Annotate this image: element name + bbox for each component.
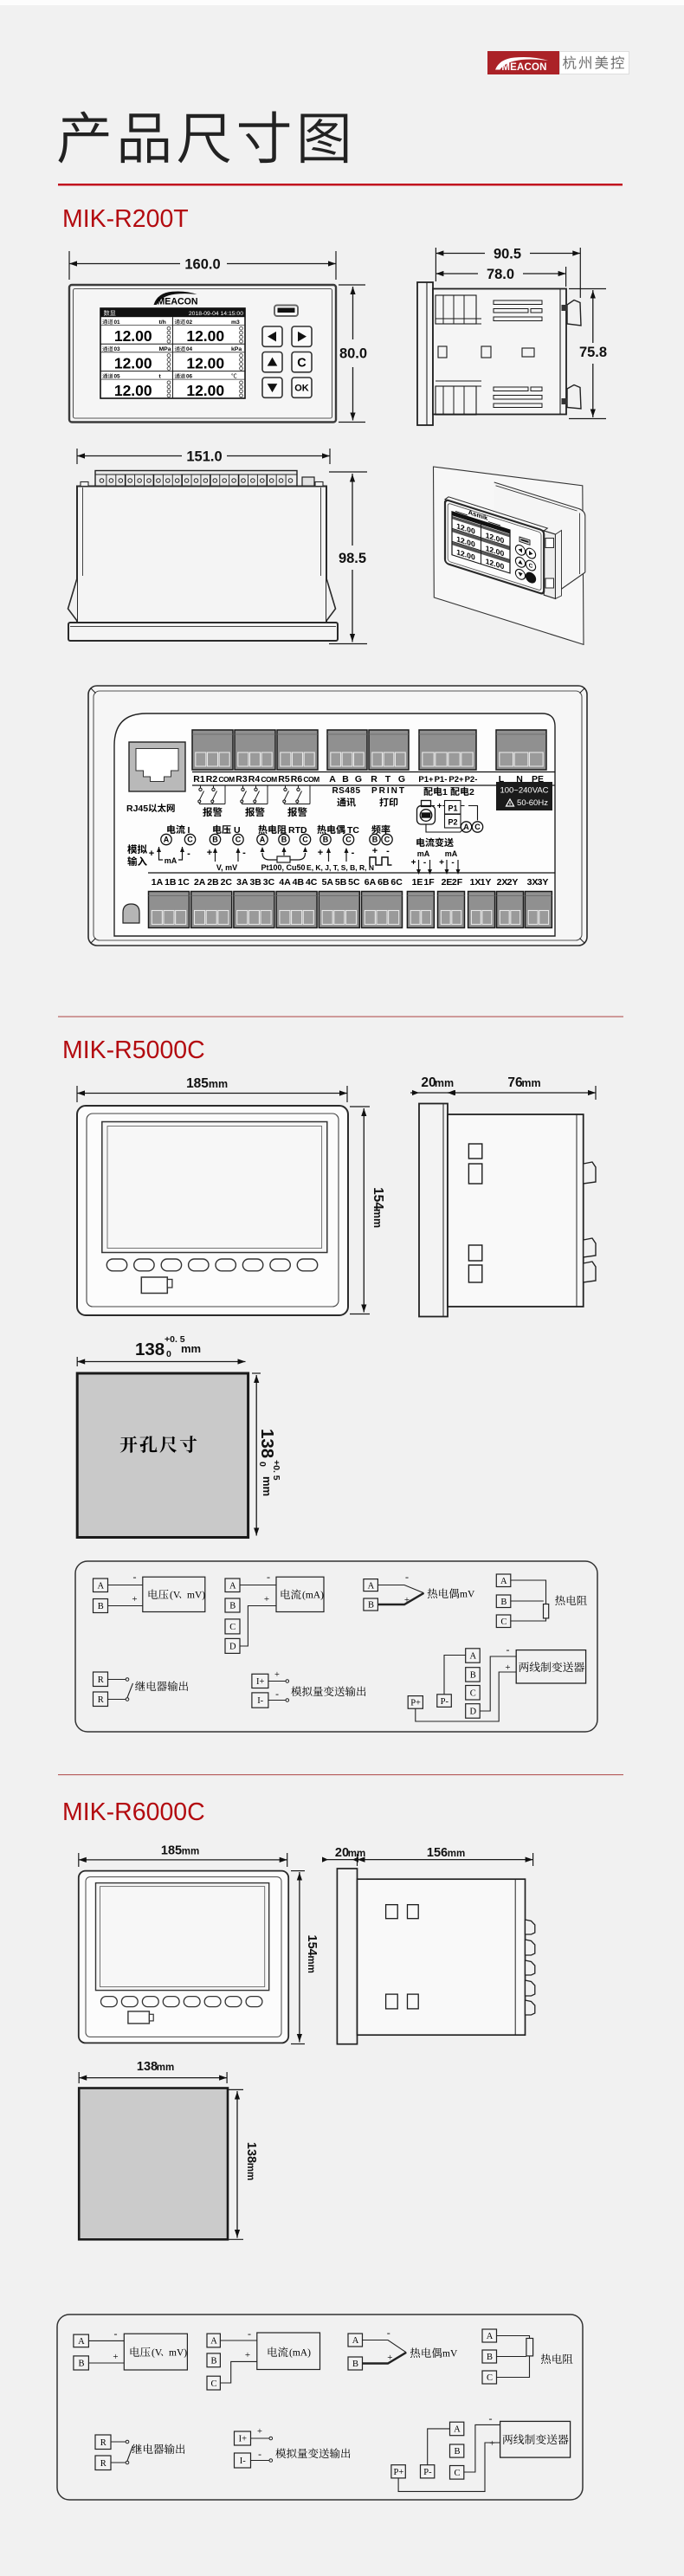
svg-text:P+: P+ xyxy=(394,2468,404,2477)
svg-text:mA: mA xyxy=(417,849,430,858)
svg-text:C: C xyxy=(236,836,242,844)
svg-text:mm: mm xyxy=(182,1847,199,1857)
svg-text:A: A xyxy=(469,1652,476,1662)
svg-text:138: 138 xyxy=(135,1340,165,1359)
svg-text:C: C xyxy=(229,1623,236,1632)
svg-text:4B: 4B xyxy=(293,877,305,888)
svg-text:mm: mm xyxy=(435,1077,454,1089)
svg-text:4C: 4C xyxy=(306,877,318,888)
svg-text:mm: mm xyxy=(306,1955,316,1972)
svg-text:2A: 2A xyxy=(194,877,206,888)
svg-text:+: + xyxy=(113,2352,118,2362)
svg-text:C: C xyxy=(454,2469,460,2478)
svg-text:A: A xyxy=(329,774,336,784)
svg-text:-: - xyxy=(258,2450,261,2460)
svg-text:C: C xyxy=(187,836,193,844)
svg-text:6A: 6A xyxy=(365,877,377,888)
svg-text:+: + xyxy=(132,1594,137,1604)
svg-text:B: B xyxy=(352,2360,358,2369)
svg-text:mV): mV) xyxy=(169,2348,187,2359)
svg-text:5C: 5C xyxy=(348,877,360,888)
svg-text:C: C xyxy=(470,1688,476,1698)
svg-text:R3: R3 xyxy=(236,774,248,784)
svg-text:-: - xyxy=(451,858,454,868)
svg-text:T: T xyxy=(385,774,391,784)
svg-text:0: 0 xyxy=(257,1462,268,1467)
svg-text:-: - xyxy=(114,2327,118,2340)
svg-text:12.00: 12.00 xyxy=(186,355,224,372)
svg-text:+: + xyxy=(439,858,444,868)
svg-text:E, K, J, T, S, B, R, N: E, K, J, T, S, B, R, N xyxy=(307,863,374,872)
svg-text:151.0: 151.0 xyxy=(186,449,222,465)
svg-text:-: - xyxy=(405,1571,409,1583)
svg-text:+: + xyxy=(149,849,154,859)
svg-text:mA: mA xyxy=(445,849,458,858)
svg-text:0: 0 xyxy=(166,1349,171,1359)
svg-text:D: D xyxy=(469,1708,476,1717)
svg-text:98.5: 98.5 xyxy=(339,551,366,566)
svg-text:OK: OK xyxy=(294,384,309,394)
svg-text:75.8: 75.8 xyxy=(579,345,607,360)
svg-text:P1: P1 xyxy=(448,804,457,813)
svg-text:2Y: 2Y xyxy=(507,877,519,888)
svg-text:2X: 2X xyxy=(497,877,508,888)
svg-text:156: 156 xyxy=(427,1846,448,1860)
svg-text:R: R xyxy=(100,2438,106,2448)
svg-text:P2-: P2- xyxy=(465,775,478,784)
svg-text:B: B xyxy=(487,2353,493,2362)
svg-text:COM: COM xyxy=(218,775,235,784)
svg-text:MEACON: MEACON xyxy=(157,297,197,307)
svg-text:+: + xyxy=(274,1670,280,1680)
svg-text:+: + xyxy=(257,2427,262,2437)
svg-text:P-: P- xyxy=(423,2468,432,2477)
svg-text:A: A xyxy=(98,1581,105,1591)
svg-text:(mA): (mA) xyxy=(289,2348,311,2359)
svg-text:R5: R5 xyxy=(278,774,290,784)
svg-text:D: D xyxy=(229,1643,236,1652)
svg-text:P1+: P1+ xyxy=(418,775,434,784)
svg-text:12.00: 12.00 xyxy=(114,327,152,345)
svg-text:A: A xyxy=(454,2425,461,2435)
svg-text:R: R xyxy=(371,774,377,784)
svg-text:05: 05 xyxy=(114,373,121,379)
svg-text:1Y: 1Y xyxy=(481,877,492,888)
svg-text:mm: mm xyxy=(157,2063,174,2073)
svg-text:+: + xyxy=(404,1595,410,1605)
svg-text:-: - xyxy=(275,1689,279,1700)
svg-text:3C: 3C xyxy=(263,877,275,888)
svg-text:B: B xyxy=(342,774,349,784)
svg-text:12.00: 12.00 xyxy=(114,382,152,399)
svg-text:R2: R2 xyxy=(206,774,218,784)
svg-text:154: 154 xyxy=(305,1934,319,1955)
svg-text:mm: mm xyxy=(245,2163,255,2180)
svg-text:B: B xyxy=(210,2356,216,2366)
svg-text:1: 1 xyxy=(442,787,448,797)
svg-text:mm: mm xyxy=(209,1078,228,1090)
svg-text:G: G xyxy=(398,774,405,784)
svg-text:I+: I+ xyxy=(256,1677,264,1687)
svg-text:(V: (V xyxy=(152,2348,163,2359)
svg-text:01: 01 xyxy=(114,320,121,326)
svg-text:(V: (V xyxy=(170,1591,181,1601)
svg-text:A: A xyxy=(487,2332,494,2341)
svg-text:+: + xyxy=(387,2353,392,2363)
svg-text:04: 04 xyxy=(186,346,193,352)
svg-text:2E: 2E xyxy=(442,877,453,888)
svg-text:138: 138 xyxy=(257,1429,277,1458)
svg-text:B: B xyxy=(368,1601,374,1611)
svg-text:160.0: 160.0 xyxy=(184,257,220,273)
svg-text:-: - xyxy=(242,848,246,858)
svg-text:PRINT: PRINT xyxy=(371,786,406,796)
svg-text:+: + xyxy=(489,2438,494,2449)
svg-text:B: B xyxy=(229,1602,236,1611)
svg-text:A: A xyxy=(463,823,469,831)
svg-text:C: C xyxy=(487,2373,493,2383)
svg-text:B: B xyxy=(323,836,329,844)
svg-text:C: C xyxy=(384,836,390,844)
svg-text:A: A xyxy=(229,1581,236,1591)
svg-text:MIK-R5000C: MIK-R5000C xyxy=(62,1036,205,1064)
svg-text:-: - xyxy=(267,1571,270,1583)
svg-text:2018-09-04 14:15:00: 2018-09-04 14:15:00 xyxy=(189,311,243,317)
svg-text:B: B xyxy=(281,836,287,844)
svg-text:m3: m3 xyxy=(231,320,240,326)
svg-text:1B: 1B xyxy=(165,877,177,888)
svg-text:B: B xyxy=(212,836,218,844)
svg-text:B: B xyxy=(372,836,378,844)
svg-text:P-: P- xyxy=(441,1697,449,1707)
svg-text:+: + xyxy=(245,2350,250,2360)
svg-text:C: C xyxy=(474,823,481,831)
svg-text:B: B xyxy=(78,2360,84,2369)
svg-text:2: 2 xyxy=(469,787,474,797)
svg-text:2C: 2C xyxy=(221,877,233,888)
svg-text:mm: mm xyxy=(181,1342,201,1355)
svg-text:R: R xyxy=(98,1695,104,1705)
svg-text:C: C xyxy=(302,836,308,844)
svg-text:138: 138 xyxy=(244,2142,258,2163)
svg-text:+: + xyxy=(207,848,212,858)
svg-text:02: 02 xyxy=(186,320,193,326)
svg-text:50-60Hz: 50-60Hz xyxy=(517,798,548,808)
svg-text:kPa: kPa xyxy=(231,346,242,352)
svg-text:185: 185 xyxy=(161,1844,182,1858)
svg-text:I-: I- xyxy=(257,1696,263,1706)
svg-text:+: + xyxy=(505,1662,510,1673)
svg-text:1C: 1C xyxy=(177,877,190,888)
svg-text:MIK-R6000C: MIK-R6000C xyxy=(62,1798,205,1826)
svg-text:78.0: 78.0 xyxy=(487,267,514,282)
svg-text:B: B xyxy=(500,1598,507,1607)
svg-text:1X: 1X xyxy=(470,877,481,888)
svg-text:-: - xyxy=(507,1643,510,1656)
svg-text:90.5: 90.5 xyxy=(494,247,521,262)
svg-text:3X: 3X xyxy=(527,877,539,888)
svg-text:C: C xyxy=(345,836,352,844)
svg-text:1A: 1A xyxy=(152,877,164,888)
svg-text:-: - xyxy=(489,2412,493,2424)
svg-text:mm: mm xyxy=(521,1077,540,1089)
svg-text:1E: 1E xyxy=(412,877,423,888)
svg-text:t/h: t/h xyxy=(159,320,166,326)
svg-text:-: - xyxy=(387,2327,390,2339)
svg-text:R: R xyxy=(100,2459,106,2469)
svg-text:mm: mm xyxy=(261,1476,274,1496)
svg-text:+: + xyxy=(372,846,377,856)
svg-text:A: A xyxy=(500,1577,507,1586)
svg-text:mV: mV xyxy=(460,1590,475,1600)
svg-text:A: A xyxy=(210,2337,217,2347)
svg-text:-: - xyxy=(423,858,426,868)
svg-text:5A: 5A xyxy=(322,877,334,888)
svg-text:+: + xyxy=(264,1594,269,1604)
svg-text:2F: 2F xyxy=(452,877,463,888)
svg-text:P+: P+ xyxy=(410,1699,421,1708)
svg-text:I+: I+ xyxy=(239,2435,247,2444)
svg-text:I-: I- xyxy=(240,2457,246,2466)
svg-text:B: B xyxy=(98,1602,104,1611)
svg-text:A: A xyxy=(368,1581,375,1591)
svg-text:P2+: P2+ xyxy=(448,775,464,784)
svg-text:A: A xyxy=(78,2337,85,2347)
svg-text:mV: mV xyxy=(442,2349,458,2360)
svg-text:mV): mV) xyxy=(187,1591,205,1601)
svg-text:3A: 3A xyxy=(236,877,248,888)
svg-text:-: - xyxy=(386,846,390,856)
svg-text:A: A xyxy=(164,836,170,844)
svg-text:6C: 6C xyxy=(390,877,403,888)
svg-text:6B: 6B xyxy=(377,877,390,888)
svg-text:+: + xyxy=(318,848,323,858)
svg-text:C: C xyxy=(500,1617,507,1627)
svg-text:2B: 2B xyxy=(207,877,219,888)
svg-text:(mA): (mA) xyxy=(302,1591,324,1601)
svg-text:C: C xyxy=(210,2379,216,2389)
svg-text:-: - xyxy=(187,849,190,859)
svg-text:-: - xyxy=(352,848,355,858)
svg-text:12.00: 12.00 xyxy=(186,382,224,399)
svg-text:B: B xyxy=(454,2447,460,2457)
svg-text:mm: mm xyxy=(448,1849,465,1859)
svg-text:138: 138 xyxy=(137,2060,158,2074)
svg-text:03: 03 xyxy=(114,346,121,352)
svg-text:Pt100, Cu50: Pt100, Cu50 xyxy=(261,863,305,872)
svg-text:P1-: P1- xyxy=(435,775,448,784)
svg-text:P2: P2 xyxy=(448,818,457,827)
svg-text:RS485: RS485 xyxy=(332,786,360,796)
svg-text:B: B xyxy=(470,1671,476,1681)
svg-text:3B: 3B xyxy=(249,877,261,888)
svg-text:mm: mm xyxy=(371,1209,384,1228)
svg-text:185: 185 xyxy=(186,1076,209,1091)
svg-text:06: 06 xyxy=(186,373,193,379)
svg-text:A: A xyxy=(352,2336,359,2346)
svg-text:COM: COM xyxy=(303,775,319,784)
svg-text:12.00: 12.00 xyxy=(186,327,224,345)
svg-text:4A: 4A xyxy=(279,877,291,888)
svg-text:R: R xyxy=(98,1675,104,1685)
svg-text:154: 154 xyxy=(371,1187,385,1210)
svg-text:R6: R6 xyxy=(291,774,303,784)
svg-text:R4: R4 xyxy=(248,774,261,784)
svg-text:C: C xyxy=(297,356,307,370)
svg-text:+: + xyxy=(437,802,442,811)
svg-text:5B: 5B xyxy=(335,877,347,888)
svg-text:76: 76 xyxy=(507,1075,523,1090)
svg-text:-: - xyxy=(133,1571,137,1583)
svg-text:mA: mA xyxy=(165,856,177,865)
svg-text:RJ45: RJ45 xyxy=(126,804,148,814)
svg-text:R1: R1 xyxy=(193,774,205,784)
svg-text:100~240VAC: 100~240VAC xyxy=(500,786,548,796)
svg-text:12.00: 12.00 xyxy=(114,355,152,372)
svg-text:MPa: MPa xyxy=(159,346,171,352)
svg-text:20: 20 xyxy=(335,1846,349,1860)
svg-text:A: A xyxy=(260,836,266,844)
svg-text:-: - xyxy=(248,2327,251,2340)
svg-text:V, mV: V, mV xyxy=(216,863,237,872)
svg-text:COM: COM xyxy=(261,775,277,784)
svg-text:1F: 1F xyxy=(423,877,435,888)
svg-text:80.0: 80.0 xyxy=(339,346,367,362)
svg-text:G: G xyxy=(355,774,362,784)
svg-text:+: + xyxy=(411,858,416,868)
svg-text:3Y: 3Y xyxy=(538,877,549,888)
